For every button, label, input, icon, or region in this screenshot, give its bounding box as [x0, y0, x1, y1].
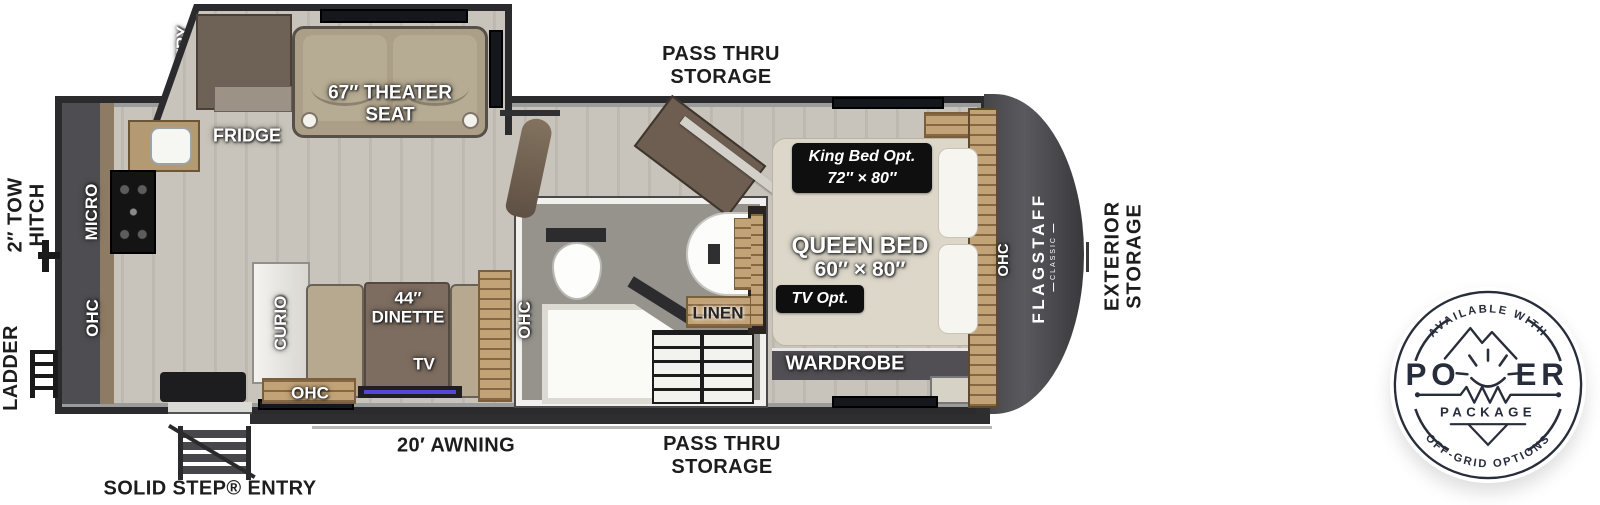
curio-label: CURIO — [272, 296, 290, 351]
queen-bed-label: QUEEN BED 60″ × 80″ — [792, 232, 929, 282]
exterior-storage-tick — [1086, 242, 1089, 272]
entry-door-threshold — [168, 402, 252, 414]
step-2 — [183, 442, 246, 450]
dash-right-decor — [1053, 224, 1054, 233]
awning-label: 20′ AWNING — [397, 435, 515, 458]
floorplan-canvas: PANTRY FRIDGE 67″ THEATER SEAT MICRO OHC… — [0, 0, 1600, 505]
solid-step-entry-label: SOLID STEP® ENTRY — [103, 478, 316, 501]
fridge-front — [214, 86, 292, 112]
ladder-icon — [30, 350, 58, 398]
ladder-label: LADDER — [1, 325, 23, 411]
linen-shelves — [652, 330, 754, 404]
bedroom-bottom-window — [832, 396, 938, 408]
pillow-top — [938, 148, 978, 238]
awning-bracket — [976, 406, 990, 424]
awning-bar — [250, 414, 990, 424]
tv-rail — [358, 386, 462, 398]
exterior-storage-label: EXTERIOR STORAGE — [1102, 201, 1145, 311]
brand-logo: FLAGSTAFF CLASSIC — [1030, 192, 1058, 323]
tv-screen — [364, 390, 456, 394]
power-package-badge-art: AVAILABLE WITH OFF-GRID OPTIONS PO ER PA… — [1390, 287, 1586, 483]
theater-seat-label: 67″ THEATER SEAT — [328, 82, 452, 125]
cupholder-left — [301, 112, 318, 129]
ohc-bed-label: OHC — [996, 243, 1012, 276]
badge-subtitle: PACKAGE — [1440, 404, 1536, 419]
awning-extent-line — [312, 426, 992, 429]
badge-title-left: PO — [1405, 357, 1460, 392]
pillow-bottom — [938, 244, 978, 334]
fridge-label: FRIDGE — [213, 126, 281, 147]
resistor-dot-right — [1556, 392, 1561, 397]
linen-label: LINEN — [693, 303, 744, 322]
tv-option-badge: TV Opt. — [776, 285, 864, 313]
dinette-right-cabinet — [478, 270, 512, 402]
kitchen-sink — [150, 127, 192, 165]
cupholder-right — [462, 112, 479, 129]
bedroom-top-window — [832, 97, 944, 109]
tv-label: TV — [413, 354, 435, 373]
ohc-bath-label: OHC — [516, 301, 534, 339]
power-package-badge: AVAILABLE WITH OFF-GRID OPTIONS PO ER PA… — [1390, 287, 1586, 483]
micro-label: MICRO — [83, 184, 101, 241]
griddle — [160, 372, 246, 402]
slideout-side-window — [489, 30, 503, 108]
bedroom-corner-cabinet — [924, 112, 974, 138]
brand-name: FLAGSTAFF — [1030, 192, 1048, 323]
badge-title-right: ER — [1515, 357, 1568, 392]
stove-cooktop — [110, 170, 156, 254]
ohc-dinette-label: OHC — [291, 383, 329, 402]
resistor-dot-left — [1415, 392, 1420, 397]
ohc-kitchen-label: OHC — [84, 299, 102, 337]
dash-left-decor — [1053, 283, 1054, 292]
king-bed-option-badge: King Bed Opt. 72″ × 80″ — [792, 143, 932, 193]
tow-hitch-post — [42, 240, 49, 272]
wardrobe-label: WARDROBE — [786, 353, 905, 376]
pass-thru-storage-top-label: PASS THRU STORAGE — [662, 43, 780, 89]
toilet-tank — [546, 228, 606, 242]
vanity-sink — [708, 244, 720, 264]
slideout-top-window — [320, 9, 468, 23]
pass-thru-storage-bottom-label: PASS THRU STORAGE — [663, 433, 781, 479]
closet-header — [500, 110, 560, 116]
bedroom-tv-shelf — [751, 214, 763, 326]
dinette-label: 44″ DINETTE — [372, 289, 445, 328]
brand-series: CLASSIC — [1050, 192, 1058, 323]
